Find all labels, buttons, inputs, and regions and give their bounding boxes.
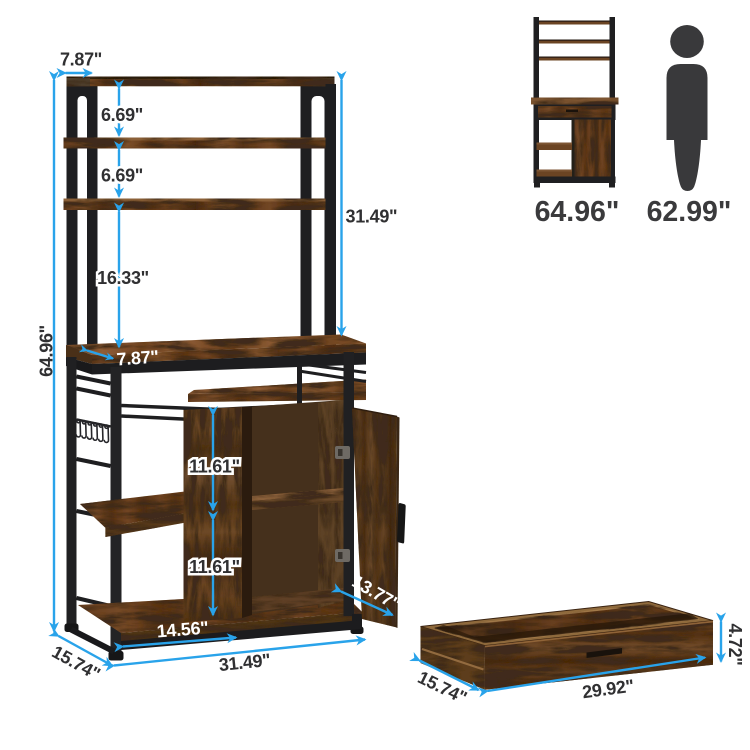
svg-text:4.72": 4.72" — [725, 623, 745, 665]
svg-text:64.96": 64.96" — [37, 325, 57, 377]
svg-text:64.96": 64.96" — [535, 196, 620, 228]
svg-text:6.69": 6.69" — [101, 166, 143, 186]
svg-text:16.33": 16.33" — [97, 268, 149, 288]
svg-text:6.69": 6.69" — [101, 105, 143, 125]
svg-text:14.56": 14.56" — [156, 617, 209, 641]
svg-text:11.61": 11.61" — [189, 557, 240, 577]
svg-text:7.87": 7.87" — [116, 347, 159, 370]
svg-text:62.99": 62.99" — [647, 196, 732, 228]
svg-text:11.61": 11.61" — [189, 457, 240, 477]
svg-text:7.87": 7.87" — [60, 50, 102, 70]
svg-text:31.49": 31.49" — [346, 207, 398, 227]
